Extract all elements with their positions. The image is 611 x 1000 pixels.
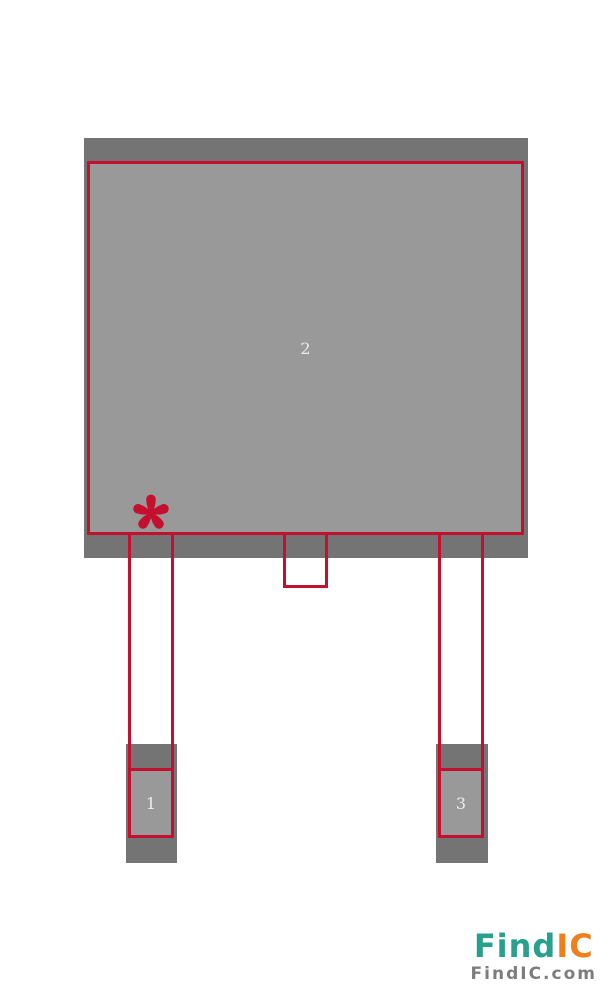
lead-3-outline-right [481, 533, 484, 771]
lead-3-outline-left [438, 533, 441, 771]
findic-website-text: FindIC.com [471, 966, 597, 983]
lead-1-outline-right [171, 533, 174, 771]
pad-1-label: 1 [146, 794, 156, 813]
footprint-canvas: 2 1 3 FindIC FindIC.com [0, 0, 611, 1000]
logo-ic-text: IC [556, 927, 593, 965]
terminal-outline-1: 1 [128, 768, 174, 838]
pad-2-label: 2 [300, 339, 310, 358]
terminal-outline-3: 3 [438, 768, 484, 838]
package-body-outline: 2 [87, 161, 524, 535]
pad-3-label: 3 [456, 794, 466, 813]
findic-logo: FindIC FindIC.com [471, 930, 597, 983]
logo-find-text: Find [474, 927, 557, 965]
center-notch-outline [283, 532, 328, 588]
lead-1-outline-left [128, 533, 131, 771]
findic-logo-text: FindIC [471, 930, 597, 962]
asterisk-icon [131, 491, 171, 533]
